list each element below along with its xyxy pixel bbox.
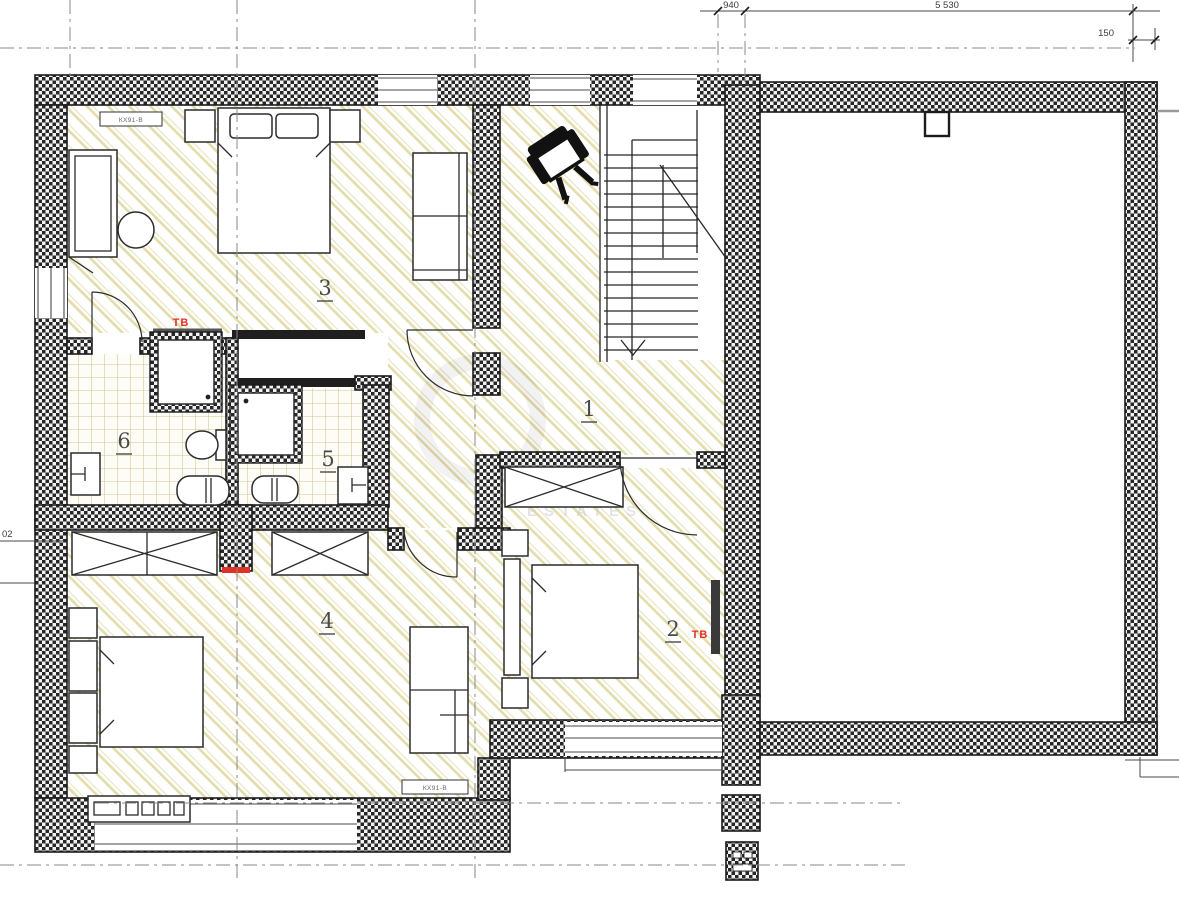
window-top-stairs	[633, 75, 697, 105]
room-label-4: 4	[320, 609, 333, 633]
stairs-down-arrow	[621, 340, 645, 355]
window-top-room3	[378, 75, 437, 105]
window-top-hall	[530, 75, 590, 105]
radiator-label-bottom: КХ91-В	[423, 785, 447, 792]
window-bottom-room2	[565, 722, 722, 772]
sink-bath5	[338, 467, 368, 504]
staircase	[600, 105, 726, 362]
tv-room2-unit	[711, 580, 720, 654]
room-label-3: 3	[318, 276, 331, 300]
wall-pier-bottom	[722, 695, 760, 785]
wardrobe-room3	[69, 150, 117, 273]
stool-room3	[118, 212, 154, 248]
chimney-block	[925, 112, 949, 136]
dim-ext-right	[1133, 4, 1155, 62]
wardrobe-room4-right	[272, 532, 368, 575]
duct-red-marker	[222, 567, 250, 573]
desk-room4	[410, 627, 468, 753]
shower-bath5	[230, 385, 302, 463]
wardrobe-hall	[505, 467, 623, 507]
radiator-tag-room4: КХ91-В	[402, 780, 468, 794]
wall-room3-bottom	[232, 330, 365, 339]
wall-room2-top-b	[697, 452, 725, 468]
room-label-2: 2	[666, 617, 679, 641]
floor-plan-canvas: ESTATES	[0, 0, 1179, 899]
stairs-stringer	[632, 110, 697, 360]
wall-bath-bottom	[35, 505, 388, 530]
column-2-detail	[733, 852, 741, 858]
wall-left	[35, 105, 67, 798]
wall-room3-hall-upper	[473, 105, 500, 328]
wall-garage-bottom	[760, 722, 1157, 755]
room-label-5: 5	[321, 447, 334, 471]
duct-shaft	[220, 505, 252, 571]
bathtub-bath5	[252, 476, 298, 503]
tv-label-room3: ТВ	[173, 317, 190, 329]
radiator-room4	[88, 796, 190, 822]
column-1	[722, 795, 760, 831]
bathtub-bath6	[177, 476, 229, 505]
window-left-bath6	[35, 268, 67, 318]
dim-5530: 5 530	[935, 0, 959, 11]
toilet-bath6	[186, 430, 226, 460]
dim-lines-bottom-right	[1125, 757, 1179, 777]
radiator-tag-room3: КХ91-В	[100, 112, 162, 126]
wall-room4-top-a	[388, 528, 404, 550]
bed-room3	[218, 108, 330, 253]
nightstand-room3-right	[330, 110, 360, 142]
room-label-1: 1	[582, 397, 595, 421]
room-label-6: 6	[117, 429, 130, 453]
wall-step	[478, 758, 510, 800]
sink-bath6	[71, 453, 100, 495]
floor-garage	[762, 115, 1125, 722]
shower-bath6	[150, 332, 222, 412]
stairs-break-line	[660, 165, 726, 258]
tv-label-room2: ТВ	[692, 629, 709, 641]
stairs-treads	[604, 155, 698, 350]
wall-right-house	[725, 85, 760, 697]
wall-room3-hall-lower	[473, 353, 500, 395]
wall-garage-right	[1125, 82, 1157, 755]
dim-02: 02	[2, 529, 13, 540]
dim-150: 150	[1098, 28, 1114, 39]
dim-940: 940	[723, 0, 739, 11]
floor-plan-drawing: ESTATES	[0, 0, 1179, 899]
wall-room2-top-a	[500, 452, 620, 468]
radiator-label-top: КХ91-В	[119, 117, 143, 124]
wall-bath6-top-a	[67, 338, 92, 354]
nightstand-room3-left	[185, 110, 215, 142]
wardrobe-room4-left	[72, 532, 217, 575]
column-2-detail	[744, 852, 752, 858]
column-2	[726, 842, 758, 880]
desk-room3	[413, 153, 467, 280]
wall-garage-top	[760, 82, 1157, 112]
